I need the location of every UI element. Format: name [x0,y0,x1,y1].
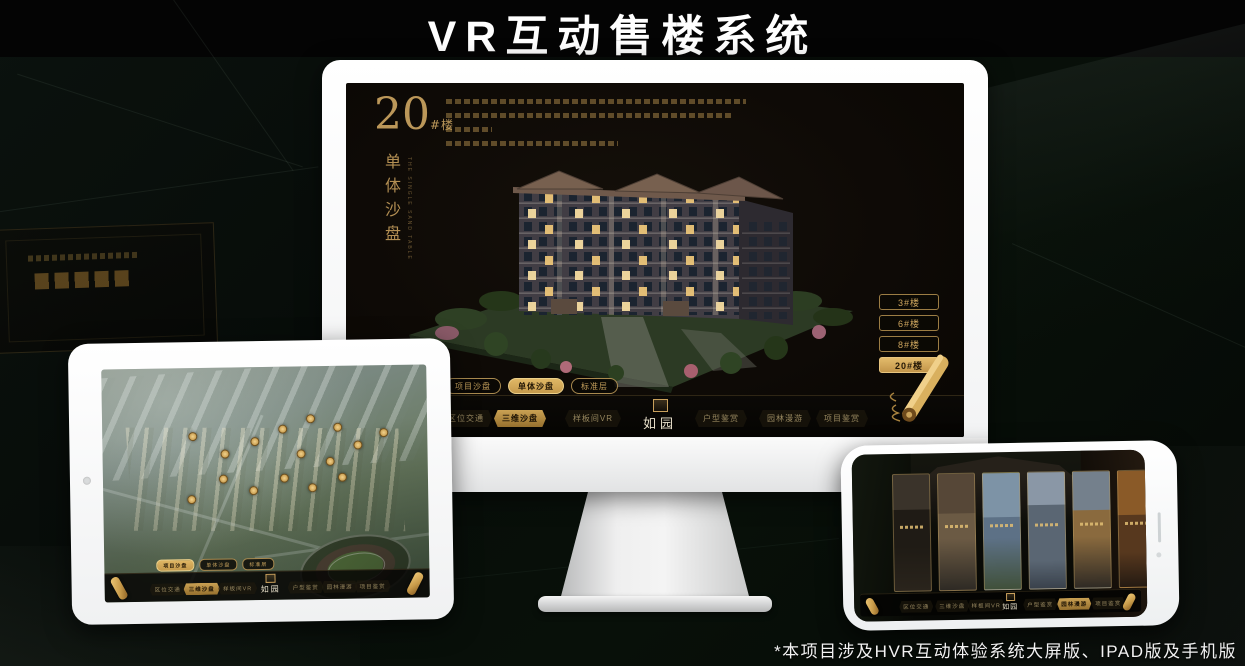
nav-item-showroom-vr[interactable]: 样板间VR [565,410,621,427]
scroll-brush-icon[interactable] [1122,592,1137,612]
nav-item-project-view[interactable]: 项目鉴赏 [355,580,391,593]
map-road-line [17,74,303,168]
nav-item-3d-sandbox[interactable]: 三维沙盘 [494,410,546,427]
nav-item-3d-sandbox[interactable]: 三维沙盘 [184,583,220,596]
nav-item-floorplans[interactable]: 户型鉴赏 [695,410,747,427]
floor-button-3[interactable]: 3#楼 [879,294,939,310]
phone-speaker [1158,512,1162,542]
tablet-nav-bar: 区位交通 三维沙盘 样板间VR 如园 户型鉴赏 园林漫游 项目鉴赏 [104,568,429,602]
tab-standard-floor[interactable]: 标准层 [571,378,618,394]
nav-item-garden-roam[interactable]: 园林漫游 [322,580,358,593]
page-title: VR互动售楼系统 [0,2,1245,64]
nav-item-location[interactable]: 区位交通 [150,583,186,596]
scene-card[interactable] [937,473,977,592]
sandbox-mode-tabs: 项目沙盘 单体沙盘 标准层 [445,378,618,394]
nav-item-location[interactable]: 区位交通 [899,600,933,613]
tablet-sandbox-mode-tabs: 项目沙盘 单体沙盘 标准层 [156,558,274,572]
footnote: *本项目涉及HVR互动体验系统大屏版、IPAD版及手机版 [774,637,1237,662]
floor-button-6[interactable]: 6#楼 [879,315,939,331]
poster-canvas: VR互动售楼系统 20#楼 单体沙盘 THE SINGLE SAND TABLE [0,0,1245,666]
nav-item-floorplans[interactable]: 户型鉴赏 [288,581,324,594]
scene-card[interactable] [892,473,932,592]
phone-screen: 区位交通 三维沙盘 样板间VR 如园 户型鉴赏 园林漫游 项目鉴赏 [852,450,1148,622]
scroll-brush-icon[interactable] [406,571,425,596]
project-logo: 如园 [260,574,280,595]
tablet-screen: 项目沙盘 单体沙盘 标准层 区位交通 三维沙盘 样板间VR 如园 户型鉴赏 园林… [101,364,430,602]
tablet-device: 项目沙盘 单体沙盘 标准层 区位交通 三维沙盘 样板间VR 如园 户型鉴赏 园林… [68,338,454,625]
nav-item-showroom-vr[interactable]: 样板间VR [968,599,1005,612]
tab-project-sandbox[interactable]: 项目沙盘 [445,378,501,394]
seal-icon [1006,593,1015,601]
project-logo: 如园 [1002,593,1018,612]
nav-item-project-view[interactable]: 项目鉴赏 [1091,597,1125,610]
map-road-line [1012,243,1245,358]
monitor-stand [560,490,750,600]
nav-item-showroom-vr[interactable]: 样板间VR [218,582,257,595]
project-logo: 如园 [643,399,677,432]
tab-project-sandbox[interactable]: 项目沙盘 [156,559,194,572]
phone-nav-bar: 区位交通 三维沙盘 样板间VR 如园 户型鉴赏 园林漫游 项目鉴赏 [860,589,1141,617]
building-3d-render [401,129,861,399]
monitor-base [538,596,772,612]
nav-item-floorplans[interactable]: 户型鉴赏 [1023,598,1057,611]
scene-card[interactable] [1027,471,1067,590]
single-sandbox-vertical-title: 单体沙盘 [379,153,403,249]
background-plaque [0,222,218,354]
seal-icon [265,574,275,583]
seal-icon [652,399,667,412]
scene-card[interactable] [1117,469,1148,588]
tablet-camera [83,477,91,485]
nav-item-3d-sandbox[interactable]: 三维沙盘 [935,600,969,613]
tab-standard-floor[interactable]: 标准层 [242,558,274,571]
tab-single-sandbox[interactable]: 单体沙盘 [508,378,564,394]
map-road-line [0,166,318,214]
scroll-brush-icon[interactable] [886,345,956,437]
nav-item-project-view[interactable]: 项目鉴赏 [816,410,868,427]
phone-camera [1156,552,1161,557]
tab-single-sandbox[interactable]: 单体沙盘 [199,558,237,571]
scene-card-gallery [892,469,1148,592]
phone-device: 区位交通 三维沙盘 样板间VR 如园 户型鉴赏 园林漫游 项目鉴赏 [840,440,1179,631]
scroll-brush-icon[interactable] [109,576,128,601]
nav-item-garden-roam[interactable]: 园林漫游 [1057,598,1091,611]
scene-card[interactable] [982,472,1022,591]
scene-card[interactable] [1072,470,1112,589]
scroll-brush-icon[interactable] [864,597,880,617]
nav-item-garden-roam[interactable]: 园林漫游 [759,410,811,427]
